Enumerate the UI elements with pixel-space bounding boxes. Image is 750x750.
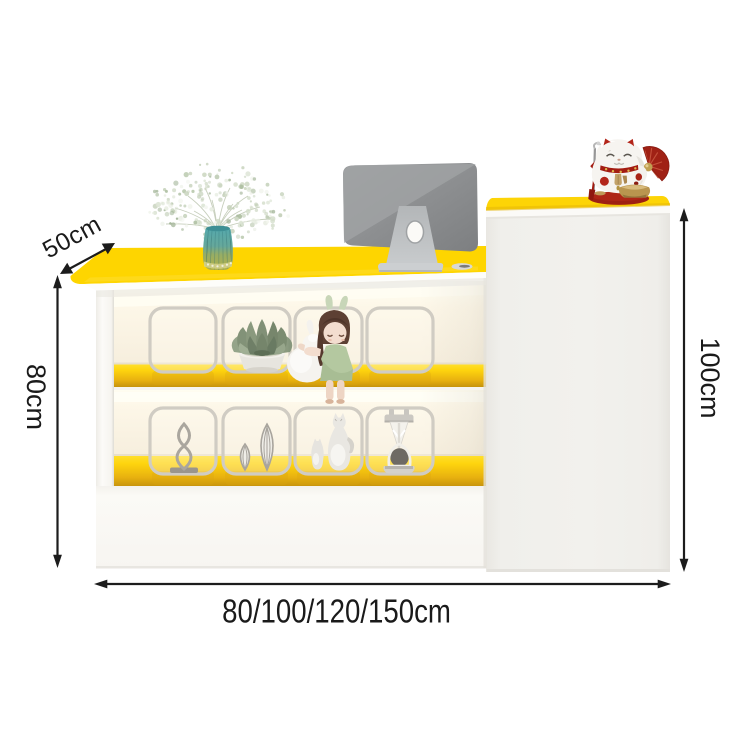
svg-text:100cm: 100cm bbox=[695, 337, 725, 418]
svg-text:80/100/120/150cm: 80/100/120/150cm bbox=[222, 592, 451, 630]
svg-text:80cm: 80cm bbox=[21, 364, 51, 430]
